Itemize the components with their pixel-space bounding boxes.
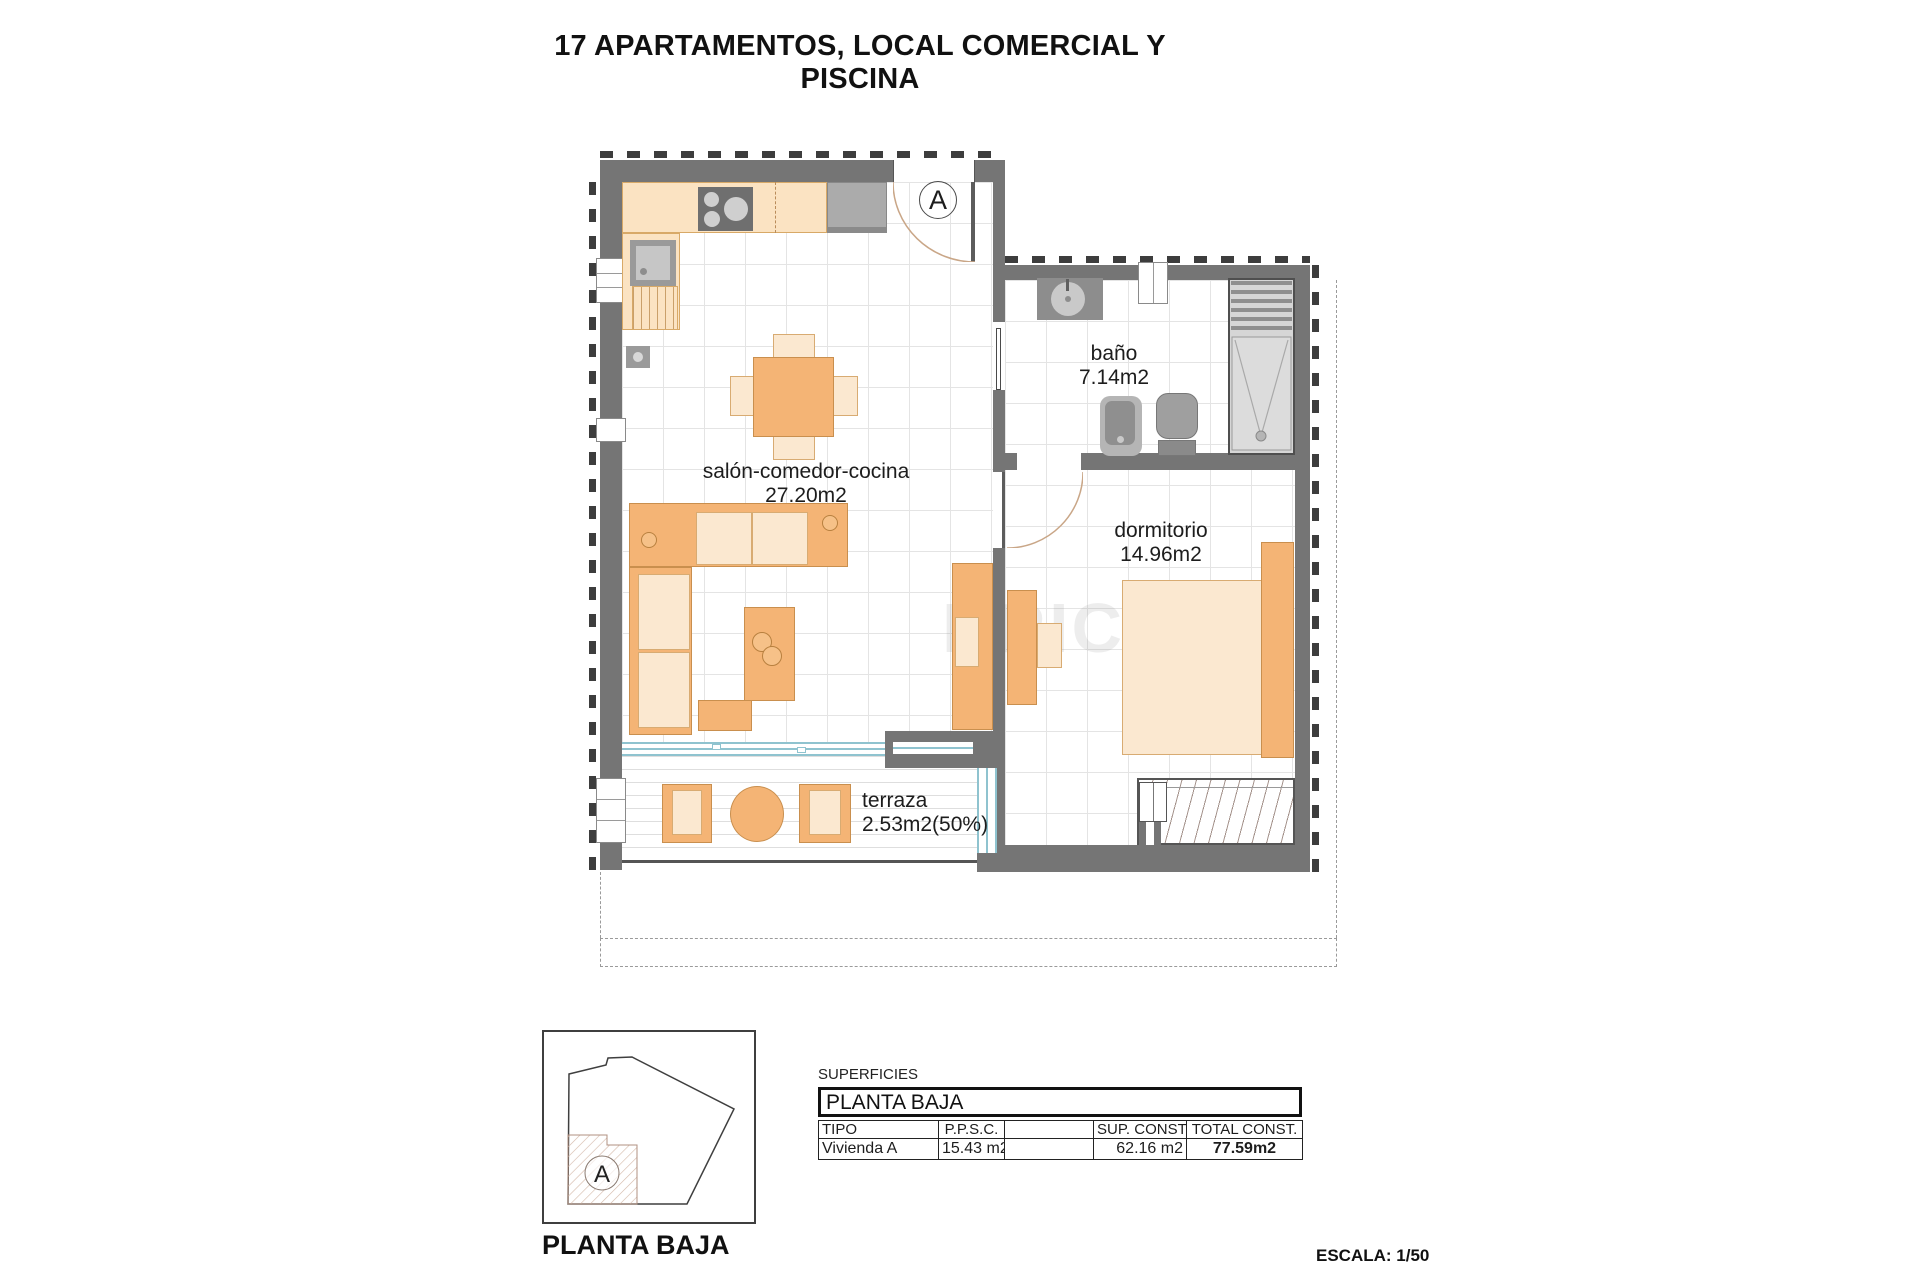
door-swing-arc bbox=[1007, 472, 1083, 548]
window bbox=[596, 778, 626, 843]
counter-divider bbox=[775, 182, 776, 233]
dining-chair bbox=[773, 334, 815, 359]
wall-hatch bbox=[600, 151, 1005, 158]
wall bbox=[993, 160, 1005, 322]
wall-hatch bbox=[589, 182, 596, 870]
plan-sheet: 17 APARTAMENTOS, LOCAL COMERCIAL Y PISCI… bbox=[0, 0, 1920, 1280]
room-name: dormitorio bbox=[1096, 519, 1226, 543]
boundary-dashed-line bbox=[1336, 280, 1337, 938]
terrace-chair-seat bbox=[809, 790, 841, 835]
col-total-const: TOTAL CONST. bbox=[1187, 1121, 1303, 1139]
key-plan-caption: PLANTA BAJA bbox=[542, 1230, 730, 1261]
boundary-dashed-line bbox=[600, 872, 601, 938]
room-label-bano: baño 7.14m2 bbox=[1059, 342, 1169, 390]
wall bbox=[600, 740, 622, 778]
room-label-dormitorio: dormitorio 14.96m2 bbox=[1096, 519, 1226, 567]
dining-chair bbox=[773, 435, 815, 460]
bed-headboard bbox=[1261, 542, 1294, 758]
wall bbox=[600, 442, 622, 740]
burner-icon bbox=[704, 211, 720, 227]
boundary-dashed-rect bbox=[600, 938, 1337, 967]
sliding-glass-door bbox=[622, 742, 885, 756]
shower-tray bbox=[1231, 336, 1292, 452]
room-area: 7.14m2 bbox=[1059, 366, 1169, 390]
surfaces-table: TIPO P.P.S.C. SUP. CONST. TOTAL CONST. V… bbox=[818, 1120, 1303, 1160]
wall bbox=[600, 843, 622, 870]
unit-letter-badge: A bbox=[919, 181, 957, 219]
cell-sup-const: 62.16 m2 bbox=[1094, 1139, 1187, 1160]
wall bbox=[600, 182, 622, 258]
room-label-terraza: terraza 2.53m2(50%) bbox=[862, 789, 1002, 837]
room-label-salon: salón-comedor-cocina 27.20m2 bbox=[696, 460, 916, 508]
col-blank bbox=[1005, 1121, 1094, 1139]
sink-basin bbox=[636, 246, 670, 280]
sofa-arm-detail bbox=[641, 532, 657, 548]
wall bbox=[977, 845, 1310, 872]
room-name: salón-comedor-cocina bbox=[696, 460, 916, 484]
sink-drain bbox=[640, 268, 647, 275]
room-name: terraza bbox=[862, 789, 1002, 813]
key-plan: A bbox=[542, 1030, 756, 1224]
surfaces-header-row: TIPO P.P.S.C. SUP. CONST. TOTAL CONST. bbox=[819, 1121, 1303, 1139]
shower bbox=[1228, 278, 1295, 455]
fridge-icon bbox=[827, 182, 887, 233]
wall-hatch bbox=[1312, 265, 1319, 872]
cell-tipo: Vivienda A bbox=[819, 1139, 939, 1160]
terrace-edge-line bbox=[622, 860, 977, 863]
room-area: 27.20m2 bbox=[696, 484, 916, 508]
sofa-cushion bbox=[638, 574, 690, 650]
burner-icon bbox=[724, 197, 748, 221]
scale-note: ESCALA: 1/50 bbox=[1316, 1246, 1429, 1266]
cell-ppsc: 15.43 m2 bbox=[939, 1139, 1005, 1160]
window bbox=[1138, 262, 1168, 304]
wall bbox=[600, 160, 893, 182]
faucet-icon bbox=[1066, 279, 1069, 291]
wall bbox=[993, 390, 1005, 472]
sheet-title: 17 APARTAMENTOS, LOCAL COMERCIAL Y PISCI… bbox=[520, 30, 1200, 96]
ottoman bbox=[698, 700, 752, 731]
wardrobe-column bbox=[1139, 782, 1167, 822]
wall bbox=[1005, 453, 1017, 470]
door-leaf bbox=[1002, 472, 1005, 548]
bidet-tank bbox=[1158, 440, 1196, 456]
wall-stub bbox=[1139, 822, 1161, 845]
boiler-icon bbox=[626, 346, 650, 368]
door-handle-icon bbox=[712, 744, 721, 750]
kitchen-cabinet bbox=[632, 286, 678, 330]
dresser-front bbox=[1037, 623, 1062, 668]
toilet-icon bbox=[1100, 396, 1142, 456]
unit-letter: A bbox=[929, 185, 947, 216]
dresser bbox=[1007, 590, 1037, 705]
sofa-cushion bbox=[752, 512, 808, 565]
col-sup-const: SUP. CONST. bbox=[1094, 1121, 1187, 1139]
sofa-cushion bbox=[696, 512, 752, 565]
col-tipo: TIPO bbox=[819, 1121, 939, 1139]
sofa-cushion bbox=[638, 652, 690, 728]
room-area: 2.53m2(50%) bbox=[862, 813, 1002, 837]
terrace-table bbox=[730, 786, 784, 842]
terrace-chair-seat bbox=[672, 790, 702, 835]
cell-blank bbox=[1005, 1139, 1094, 1160]
wall bbox=[600, 303, 622, 420]
shower-screen-slats bbox=[1231, 281, 1292, 335]
door-handle-icon bbox=[797, 747, 806, 753]
table-decor bbox=[762, 646, 782, 666]
basin-drain bbox=[1065, 296, 1071, 302]
wall bbox=[1295, 265, 1310, 872]
surfaces-floor-header: PLANTA BAJA bbox=[818, 1087, 1302, 1117]
surfaces-data-row: Vivienda A 15.43 m2 62.16 m2 77.59m2 bbox=[819, 1139, 1303, 1160]
room-area: 14.96m2 bbox=[1096, 543, 1226, 567]
sofa-arm-detail bbox=[822, 515, 838, 531]
key-plan-drawing: A bbox=[544, 1032, 754, 1222]
col-ppsc: P.P.S.C. bbox=[939, 1121, 1005, 1139]
burner-icon bbox=[704, 192, 719, 207]
window bbox=[596, 418, 626, 442]
tv-unit-shelf bbox=[955, 617, 979, 667]
pocket-door bbox=[996, 328, 1001, 390]
dining-table bbox=[753, 357, 834, 437]
key-plan-unit-letter: A bbox=[594, 1161, 610, 1188]
window bbox=[893, 742, 973, 754]
room-name: baño bbox=[1059, 342, 1169, 366]
dining-chair bbox=[832, 376, 858, 416]
surfaces-section-label: SUPERFICIES bbox=[818, 1066, 918, 1083]
bed bbox=[1122, 580, 1263, 755]
boiler-dial bbox=[633, 352, 643, 362]
cell-total-const: 77.59m2 bbox=[1187, 1139, 1303, 1160]
bidet-icon bbox=[1156, 393, 1198, 439]
entrance-opening bbox=[893, 160, 975, 182]
toilet-drain bbox=[1117, 436, 1124, 443]
